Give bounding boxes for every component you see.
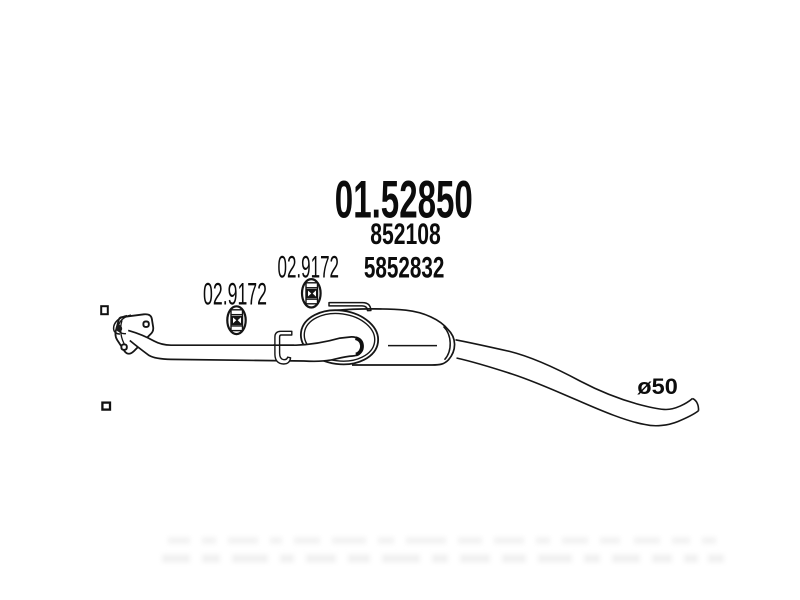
svg-text:5852832: 5852832 (364, 252, 445, 285)
svg-text:852108: 852108 (370, 218, 441, 251)
svg-text:ø50: ø50 (637, 374, 678, 399)
